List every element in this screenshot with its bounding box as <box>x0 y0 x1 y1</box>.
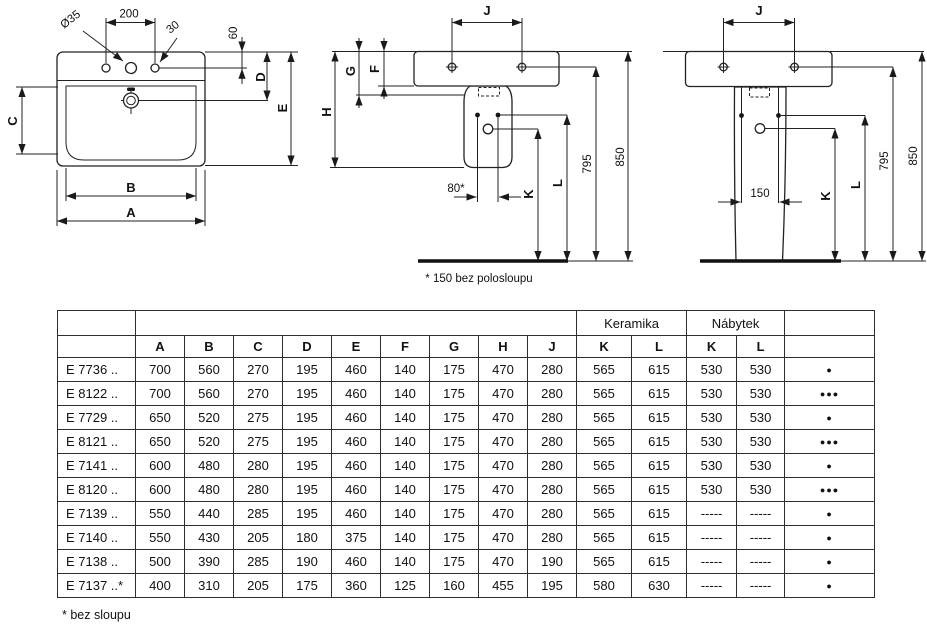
value-cell: 175 <box>430 478 479 502</box>
value-cell: 530 <box>737 430 785 454</box>
availability-marker: ●●● <box>785 430 875 454</box>
column-header-a: A <box>136 336 185 358</box>
value-cell: 280 <box>528 382 577 406</box>
value-cell: 175 <box>430 502 479 526</box>
value-cell: 615 <box>632 454 687 478</box>
availability-marker: ● <box>785 526 875 550</box>
value-cell: 180 <box>283 526 332 550</box>
value-cell: 400 <box>136 574 185 598</box>
dim-label-l-front: L <box>848 181 863 189</box>
value-cell: 700 <box>136 358 185 382</box>
value-cell: ----- <box>687 550 737 574</box>
dim-label-g: G <box>343 66 358 76</box>
column-header-b: B <box>185 336 234 358</box>
value-cell: 280 <box>528 526 577 550</box>
value-cell: 530 <box>737 454 785 478</box>
value-cell: 530 <box>687 406 737 430</box>
value-cell: 205 <box>234 574 283 598</box>
dim-label-30: 30 <box>164 19 181 36</box>
value-cell: 195 <box>283 502 332 526</box>
value-cell: 600 <box>136 454 185 478</box>
table-row: E 7736 ..7005602701954601401754702805656… <box>58 358 875 382</box>
value-cell: ----- <box>737 550 785 574</box>
column-header-k: K <box>577 336 632 358</box>
value-cell: 195 <box>528 574 577 598</box>
value-cell: 140 <box>381 550 430 574</box>
value-cell: 175 <box>430 358 479 382</box>
value-cell: 310 <box>185 574 234 598</box>
drawing-front-view: J 150 K L 795 850 <box>663 3 926 261</box>
value-cell: ----- <box>737 502 785 526</box>
value-cell: 650 <box>136 430 185 454</box>
value-cell: 565 <box>577 382 632 406</box>
marker-group-cell <box>785 311 875 336</box>
outlet-hole <box>755 124 765 134</box>
value-cell: 460 <box>332 454 381 478</box>
value-cell: 470 <box>479 478 528 502</box>
dimension-table: Keramika Nábytek ABCDEFGHJKLKL E 7736 ..… <box>57 310 875 598</box>
availability-marker: ● <box>785 502 875 526</box>
dim-label-j-front: J <box>755 3 762 18</box>
basin-side <box>414 52 559 87</box>
column-header-h: H <box>479 336 528 358</box>
fixing-bolt <box>739 113 744 118</box>
value-cell: 195 <box>283 358 332 382</box>
spec-sheet: Ø35 200 30 60 D E C B <box>0 0 927 630</box>
model-cell: E 7140 .. <box>58 526 136 550</box>
column-header-f: F <box>381 336 430 358</box>
column-header-k: K <box>687 336 737 358</box>
group-header-row: Keramika Nábytek <box>58 311 875 336</box>
value-cell: 280 <box>234 478 283 502</box>
value-cell: 500 <box>136 550 185 574</box>
value-cell: 520 <box>185 430 234 454</box>
value-cell: 390 <box>185 550 234 574</box>
availability-marker: ● <box>785 406 875 430</box>
model-cell: E 8121 .. <box>58 430 136 454</box>
value-cell: 175 <box>430 406 479 430</box>
value-cell: 565 <box>577 502 632 526</box>
value-cell: 195 <box>283 454 332 478</box>
dim-label-c: C <box>5 116 20 126</box>
dim-label-l-side: L <box>550 179 565 187</box>
value-cell: 140 <box>381 406 430 430</box>
dim-label-k-front: K <box>818 191 833 201</box>
value-cell: 615 <box>632 478 687 502</box>
value-cell: 530 <box>687 358 737 382</box>
value-cell: 175 <box>283 574 332 598</box>
column-header-l: L <box>737 336 785 358</box>
value-cell: 140 <box>381 502 430 526</box>
model-cell: E 7138 .. <box>58 550 136 574</box>
value-cell: 280 <box>528 406 577 430</box>
footnote-bez-sloupu: * bez sloupu <box>62 608 131 622</box>
table-row: E 7729 ..6505202751954601401754702805656… <box>58 406 875 430</box>
value-cell: 175 <box>430 526 479 550</box>
value-cell: 430 <box>185 526 234 550</box>
value-cell: 190 <box>283 550 332 574</box>
value-cell: 470 <box>479 454 528 478</box>
value-cell: 470 <box>479 550 528 574</box>
dim-label-795-side: 795 <box>582 154 594 173</box>
value-cell: 650 <box>136 406 185 430</box>
value-cell: 615 <box>632 526 687 550</box>
value-cell: 140 <box>381 478 430 502</box>
value-cell: 190 <box>528 550 577 574</box>
value-cell: 460 <box>332 382 381 406</box>
value-cell: 550 <box>136 502 185 526</box>
value-cell: 470 <box>479 430 528 454</box>
value-cell: 195 <box>283 406 332 430</box>
group-header-nabytek: Nábytek <box>687 311 785 336</box>
table-body: E 7736 ..7005602701954601401754702805656… <box>58 358 875 598</box>
dim-label-b: B <box>126 180 135 195</box>
dim-label-h: H <box>319 107 334 116</box>
value-cell: 270 <box>234 382 283 406</box>
value-cell: 530 <box>687 478 737 502</box>
value-cell: 565 <box>577 430 632 454</box>
value-cell: 470 <box>479 502 528 526</box>
value-cell: ----- <box>737 526 785 550</box>
table-row: E 8122 ..7005602701954601401754702805656… <box>58 382 875 406</box>
value-cell: 480 <box>185 478 234 502</box>
value-cell: 175 <box>430 430 479 454</box>
value-cell: 530 <box>737 406 785 430</box>
corner-cell <box>58 311 136 336</box>
table-row: E 7141 ..6004802801954601401754702805656… <box>58 454 875 478</box>
value-cell: 460 <box>332 430 381 454</box>
value-cell: 205 <box>234 526 283 550</box>
outlet-hole <box>483 124 493 134</box>
value-cell: 280 <box>528 358 577 382</box>
value-cell: 455 <box>479 574 528 598</box>
value-cell: 140 <box>381 430 430 454</box>
value-cell: 530 <box>687 430 737 454</box>
availability-marker: ● <box>785 574 875 598</box>
table-row: E 7138 ..5003902851904601401754701905656… <box>58 550 875 574</box>
dim-label-k-side: K <box>521 189 536 199</box>
value-cell: 440 <box>185 502 234 526</box>
model-cell: E 7736 .. <box>58 358 136 382</box>
value-cell: ----- <box>687 526 737 550</box>
value-cell: 615 <box>632 382 687 406</box>
value-cell: 530 <box>737 358 785 382</box>
value-cell: 125 <box>381 574 430 598</box>
value-cell: 565 <box>577 478 632 502</box>
table-row: E 8121 ..6505202751954601401754702805656… <box>58 430 875 454</box>
column-header-l: L <box>632 336 687 358</box>
dim-label-850-side: 850 <box>615 147 627 166</box>
value-cell: 530 <box>737 478 785 502</box>
value-cell: 460 <box>332 502 381 526</box>
value-cell: 565 <box>577 358 632 382</box>
availability-marker: ●●● <box>785 382 875 406</box>
dim-label-80: 80* <box>447 183 465 195</box>
dim-label-f: F <box>367 65 382 73</box>
group-header-keramika: Keramika <box>577 311 687 336</box>
value-cell: 280 <box>528 454 577 478</box>
value-cell: 360 <box>332 574 381 598</box>
marker-column-header <box>785 336 875 358</box>
table-row: E 7140 ..5504302051803751401754702805656… <box>58 526 875 550</box>
value-cell: 565 <box>577 526 632 550</box>
value-cell: 565 <box>577 406 632 430</box>
basin-front <box>686 52 833 87</box>
value-cell: 565 <box>577 454 632 478</box>
drawing-side-view: J G F H 80* K L 795 850 <box>319 3 633 285</box>
value-cell: 275 <box>234 430 283 454</box>
value-cell: 275 <box>234 406 283 430</box>
value-cell: 550 <box>136 526 185 550</box>
model-cell: E 7729 .. <box>58 406 136 430</box>
value-cell: 175 <box>430 454 479 478</box>
value-cell: ----- <box>687 502 737 526</box>
value-cell: 460 <box>332 358 381 382</box>
dim-label-150: 150 <box>750 188 769 200</box>
value-cell: 460 <box>332 406 381 430</box>
availability-marker: ● <box>785 454 875 478</box>
availability-marker: ● <box>785 358 875 382</box>
model-column-header <box>58 336 136 358</box>
table-row: E 8120 ..6004802801954601401754702805656… <box>58 478 875 502</box>
table-row: E 7137 ..*400310205175360125160455195580… <box>58 574 875 598</box>
value-cell: 615 <box>632 406 687 430</box>
value-cell: 285 <box>234 550 283 574</box>
value-cell: 160 <box>430 574 479 598</box>
value-cell: 530 <box>687 382 737 406</box>
column-header-c: C <box>234 336 283 358</box>
value-cell: 560 <box>185 382 234 406</box>
value-cell: 470 <box>479 526 528 550</box>
value-cell: 140 <box>381 526 430 550</box>
model-cell: E 7141 .. <box>58 454 136 478</box>
value-cell: 530 <box>687 454 737 478</box>
model-cell: E 8120 .. <box>58 478 136 502</box>
value-cell: ----- <box>687 574 737 598</box>
value-cell: 615 <box>632 550 687 574</box>
dim-label-a: A <box>126 205 136 220</box>
technical-drawings: Ø35 200 30 60 D E C B <box>0 0 927 300</box>
model-cell: E 7139 .. <box>58 502 136 526</box>
drawing-top-view: Ø35 200 30 60 D E C B <box>5 9 298 227</box>
value-cell: 195 <box>283 382 332 406</box>
value-cell: 615 <box>632 502 687 526</box>
value-cell: 470 <box>479 406 528 430</box>
column-header-g: G <box>430 336 479 358</box>
value-cell: 460 <box>332 478 381 502</box>
value-cell: 140 <box>381 454 430 478</box>
value-cell: 280 <box>528 478 577 502</box>
value-cell: 270 <box>234 358 283 382</box>
value-cell: 565 <box>577 550 632 574</box>
value-cell: 470 <box>479 358 528 382</box>
value-cell: 280 <box>528 502 577 526</box>
table-row: E 7139 ..5504402851954601401754702805656… <box>58 502 875 526</box>
dim-label-795-front: 795 <box>879 151 891 170</box>
dim-label-850-front: 850 <box>908 146 920 165</box>
availability-marker: ● <box>785 550 875 574</box>
value-cell: ----- <box>737 574 785 598</box>
value-cell: 195 <box>283 478 332 502</box>
note-semi-pedestal: * 150 bez polosloupu <box>425 273 532 285</box>
column-header-row: ABCDEFGHJKLKL <box>58 336 875 358</box>
value-cell: 175 <box>430 550 479 574</box>
dim-label-d: D <box>253 72 268 81</box>
value-cell: 175 <box>430 382 479 406</box>
value-cell: 615 <box>632 358 687 382</box>
fixing-bolt <box>475 113 480 118</box>
value-cell: 460 <box>332 550 381 574</box>
value-cell: 285 <box>234 502 283 526</box>
value-cell: 600 <box>136 478 185 502</box>
column-header-d: D <box>283 336 332 358</box>
value-cell: 280 <box>528 430 577 454</box>
value-cell: 530 <box>737 382 785 406</box>
dim-label-60: 60 <box>228 27 240 40</box>
value-cell: 140 <box>381 358 430 382</box>
value-cell: 280 <box>234 454 283 478</box>
value-cell: 140 <box>381 382 430 406</box>
value-cell: 560 <box>185 358 234 382</box>
value-cell: 700 <box>136 382 185 406</box>
dim-label-j-side: J <box>483 3 490 18</box>
blank-span-cell <box>136 311 577 336</box>
value-cell: 195 <box>283 430 332 454</box>
model-cell: E 8122 .. <box>58 382 136 406</box>
column-header-e: E <box>332 336 381 358</box>
model-cell: E 7137 ..* <box>58 574 136 598</box>
value-cell: 615 <box>632 430 687 454</box>
fixing-bolt <box>496 113 501 118</box>
value-cell: 580 <box>577 574 632 598</box>
value-cell: 520 <box>185 406 234 430</box>
value-cell: 630 <box>632 574 687 598</box>
fixing-bolt <box>776 113 781 118</box>
value-cell: 480 <box>185 454 234 478</box>
dim-label-dia35: Ø35 <box>58 9 83 32</box>
dim-label-200: 200 <box>119 9 138 21</box>
column-header-j: J <box>528 336 577 358</box>
availability-marker: ●●● <box>785 478 875 502</box>
dim-label-e: E <box>275 103 290 112</box>
value-cell: 470 <box>479 382 528 406</box>
value-cell: 375 <box>332 526 381 550</box>
